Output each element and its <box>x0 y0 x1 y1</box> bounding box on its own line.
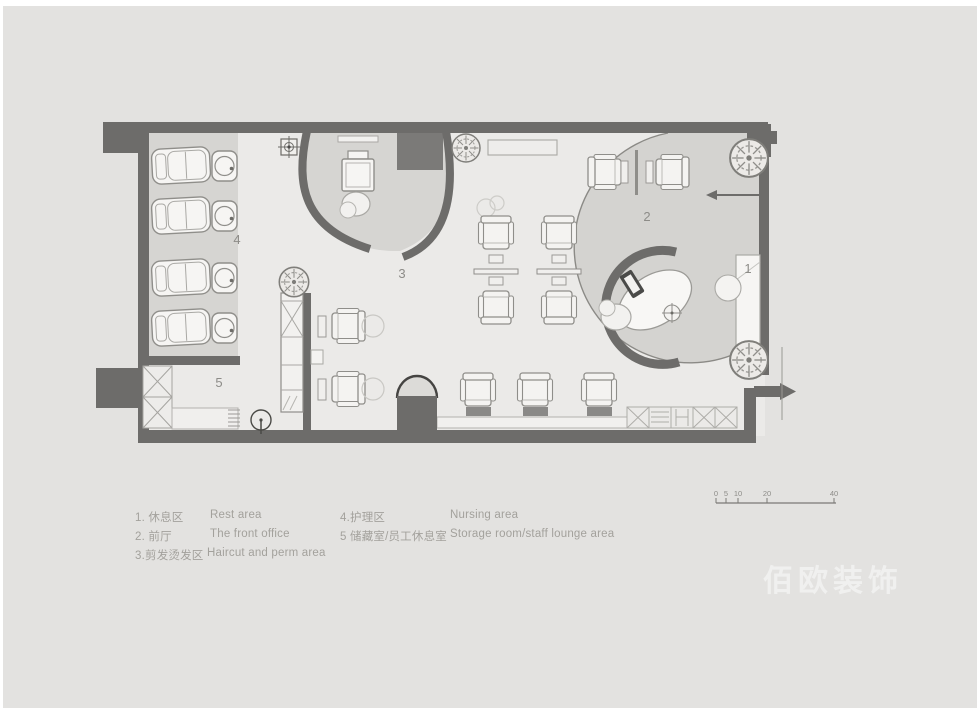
legend-item-5-zh: 5 储藏室/员工休息室 <box>340 528 447 544</box>
legend-item-2-zh: 2. 前厅 <box>135 528 172 544</box>
salon-floor-plan-page: { "plan": { "room_labels": ["1", "2", "3… <box>0 0 980 716</box>
room-label-front-office: 2 <box>643 209 650 224</box>
scale-tick-10: 10 <box>734 489 742 498</box>
legend-item-2-en: The front office <box>210 528 290 540</box>
arched-column <box>397 376 437 441</box>
legend: 1. 休息区 Rest area 2. 前厅 The front office … <box>0 0 980 80</box>
legend-item-5-en: Storage room/staff lounge area <box>450 528 614 540</box>
watermark: 佰欧装饰 <box>763 556 923 600</box>
scale-tick-40: 40 <box>830 489 838 498</box>
legend-item-3-zh: 3.剪发烫发区 <box>135 547 204 563</box>
scale-tick-20: 20 <box>763 489 771 498</box>
bottom-styling-stations <box>437 373 627 428</box>
room-label-haircut: 3 <box>398 266 405 281</box>
room-label-nursing: 4 <box>233 232 240 247</box>
legend-item-3-en: Haircut and perm area <box>207 547 326 559</box>
legend-item-1-en: Rest area <box>210 509 262 521</box>
legend-item-1-zh: 1. 休息区 <box>135 509 184 525</box>
scale-tick-5: 5 <box>724 489 728 498</box>
legend-item-4-zh: 4.护理区 <box>340 509 385 525</box>
legend-item-4-en: Nursing area <box>450 509 518 521</box>
scale-tick-0: 0 <box>714 489 718 498</box>
scale-bar: 0 5 10 20 40 <box>714 489 844 509</box>
top-shelf <box>488 140 557 155</box>
crosshair-fixture-icon <box>278 136 300 158</box>
room-label-storage: 5 <box>215 375 222 390</box>
room-label-rest: 1 <box>744 261 751 276</box>
